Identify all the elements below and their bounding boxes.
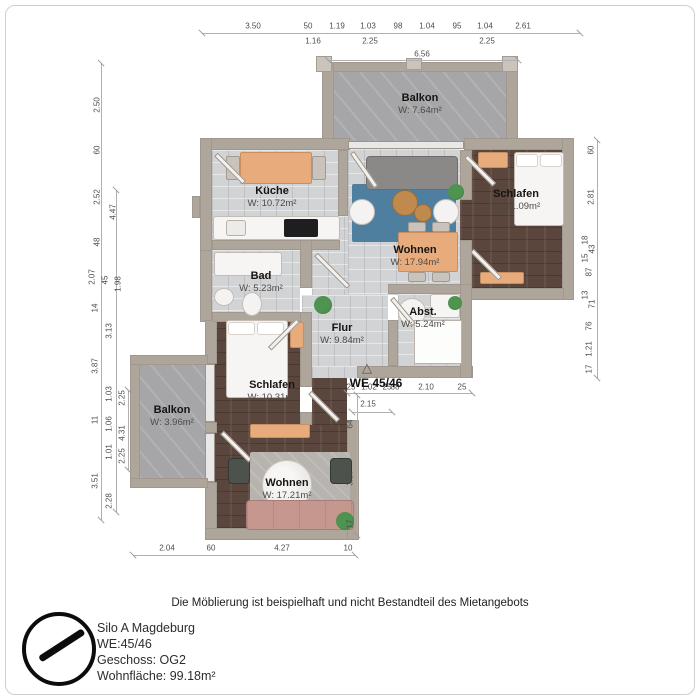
balcony-left-wall	[322, 62, 334, 148]
dim-line-we-2	[352, 412, 392, 413]
dimension-label: 2.61	[515, 22, 531, 31]
balcony-right-wall	[506, 62, 518, 148]
kitchen-table	[240, 152, 312, 184]
dimension-label: 15	[581, 254, 590, 263]
dimension-label: 60	[207, 544, 216, 553]
dim-line-left	[101, 63, 102, 520]
bad-left-wall	[200, 250, 212, 322]
room-name: Küche	[248, 185, 297, 198]
dimension-label: 1.03	[105, 386, 114, 402]
pillow-r1	[516, 154, 538, 167]
dimension-label: 2.81	[587, 189, 596, 205]
toilet	[242, 292, 262, 316]
room-area: W: 7.64m²	[398, 105, 442, 116]
dimension-label: 17	[346, 520, 355, 529]
dimension-label: 18	[581, 236, 590, 245]
dim-line-top	[202, 33, 580, 34]
wohnen-left-wall-upper	[205, 422, 217, 433]
room-label-abst: Abst. W: 5.24m²	[401, 306, 445, 331]
dimension-label: 25	[458, 383, 467, 392]
room-area: W: 10.31m²	[248, 392, 297, 403]
logo-clock-hand	[38, 628, 85, 662]
coffee-table-2	[414, 204, 432, 222]
sideboard	[250, 424, 310, 438]
abst-left-wall	[388, 320, 398, 366]
room-label-schlafen-right: Schlafen W: 11.09m²	[492, 188, 540, 213]
dresser-right-1	[478, 152, 508, 168]
dimension-label: 1.06	[105, 416, 114, 432]
room-label-wohnen-top: Wohnen W: 17.94m²	[391, 244, 440, 269]
kueche-bad-wall	[212, 240, 340, 250]
dimension-label: 87	[585, 268, 594, 277]
dimension-label: 3.37	[346, 470, 355, 486]
dimension-label: 6.56	[414, 50, 430, 59]
washbasin	[214, 288, 234, 306]
dim-line-top-2	[328, 60, 518, 61]
dimension-label: 2.10	[418, 383, 434, 392]
room-label-wohnen-bottom: Wohnen W: 17.21m²	[263, 477, 312, 502]
dimension-label: 98	[394, 22, 403, 31]
kueche-left-wall	[200, 138, 212, 262]
room-area: W: 17.94m²	[391, 257, 440, 268]
room-area: W: 9.84m²	[320, 335, 364, 346]
dim-line-left-3	[128, 390, 129, 470]
balcony-l-left-wall	[130, 355, 140, 488]
dim-line-right	[597, 140, 598, 378]
room-name: Wohnen	[391, 244, 440, 257]
dimension-label: 2.25	[479, 37, 495, 46]
room-name: Abst.	[401, 306, 445, 319]
project-info: Silo A Magdeburg WE:45/46 Geschoss: OG2 …	[97, 620, 216, 684]
room-label-flur: Flur W: 9.84m²	[320, 322, 364, 347]
kueche-left-notch	[192, 196, 200, 218]
dining-chair-4	[432, 272, 450, 282]
entrance-marker-icon	[362, 360, 372, 376]
dimension-label: 3.51	[91, 473, 100, 489]
kueche-wohnen-wall	[338, 150, 348, 216]
dresser-right-2	[480, 272, 524, 284]
project-floor: Geschoss: OG2	[97, 652, 216, 668]
logo-clock-icon	[22, 612, 96, 686]
dimension-label: 1.04	[419, 22, 435, 31]
dimension-label: 3.13	[105, 323, 114, 339]
dimension-label: 17	[585, 365, 594, 374]
dimension-label: 45	[101, 276, 110, 285]
project-living-area: Wohnfläche: 99.18m²	[97, 668, 216, 684]
room-name: Schlafen	[248, 379, 297, 392]
schlafen-bottom-wall	[460, 288, 564, 300]
kueche-top-wall	[200, 138, 350, 150]
pillow-l1	[228, 322, 255, 335]
balcony-post-left	[316, 56, 332, 72]
dimension-label: 2.07	[88, 269, 97, 285]
room-name: Bad	[239, 270, 283, 283]
project-name: Silo A Magdeburg	[97, 620, 216, 636]
dining-chair-2	[432, 222, 450, 232]
room-label-bad: Bad W: 5.23m²	[239, 270, 283, 295]
kitchen-chair-right	[312, 156, 326, 180]
dimension-label: 2.04	[159, 544, 175, 553]
dimension-label: 2.25	[118, 448, 127, 464]
dimension-label: 2.52	[93, 189, 102, 205]
dimension-label: 3.87	[91, 358, 100, 374]
room-label-balkon-left: Balkon W: 3.96m²	[150, 404, 194, 429]
dimension-label: 1.19	[329, 22, 345, 31]
dimension-label: 1.16	[305, 37, 321, 46]
dimension-label: 43	[588, 245, 597, 254]
dimension-label: 48	[93, 238, 102, 247]
dimension-label: 2.28	[105, 493, 114, 509]
bad-right-wall	[300, 240, 312, 288]
abst-top-wall	[388, 284, 464, 294]
pillow-r2	[540, 154, 562, 167]
dimension-label: 76	[585, 322, 594, 331]
dimension-label: 11	[91, 416, 100, 424]
schlafen-right-door-floor	[460, 200, 472, 240]
floor-plan: Balkon W: 7.64m² Küche W: 10.72m² Wohnen…	[0, 0, 700, 700]
dimension-label: 2.25	[362, 37, 378, 46]
room-name: Wohnen	[263, 477, 312, 490]
dimension-label: 13	[581, 291, 590, 300]
dimension-label: 1.21	[585, 341, 594, 357]
room-name: Flur	[320, 322, 364, 335]
dimension-label: 3.50	[245, 22, 261, 31]
dimension-label: 2.15	[360, 400, 376, 409]
plant-2	[448, 296, 462, 310]
dimension-label: 1.01	[105, 444, 114, 460]
dining-chair-1	[408, 222, 426, 232]
dimension-label: 95	[453, 22, 462, 31]
chair-dark-1	[228, 458, 250, 484]
room-name: Balkon	[398, 92, 442, 105]
dimension-label: 10	[344, 544, 353, 553]
dimension-label: 71	[588, 300, 597, 309]
cooktop	[284, 219, 318, 237]
dim-line-inner-v	[357, 395, 358, 535]
dimension-label: 1.04	[477, 22, 493, 31]
room-area: W: 3.96m²	[150, 417, 194, 428]
balcony-l-bottom-wall	[130, 478, 208, 488]
room-label-balkon-top: Balkon W: 7.64m²	[398, 92, 442, 117]
sofa-top	[366, 156, 458, 190]
room-area: W: 17.21m²	[263, 490, 312, 501]
armchair-1	[349, 199, 375, 225]
room-area: W: 5.23m²	[239, 283, 283, 294]
room-label-kueche: Küche W: 10.72m²	[248, 185, 297, 210]
balcony-left-window-1	[205, 364, 215, 422]
dimension-label: 4.31	[118, 425, 127, 441]
dimension-label: 64	[346, 420, 355, 429]
disclaimer-text: Die Möblierung ist beispielhaft und nich…	[0, 597, 700, 609]
room-name: Schlafen	[492, 188, 540, 201]
unit-label: WE 45/46	[350, 376, 403, 390]
project-unit: WE:45/46	[97, 636, 216, 652]
dimension-label: 2.50	[93, 97, 102, 113]
kitchen-sink	[226, 220, 246, 236]
room-area: W: 10.72m²	[248, 198, 297, 209]
schlafen-top-wall	[464, 138, 574, 150]
balcony-left-window-2	[205, 433, 215, 482]
dimension-label: 1.98	[114, 276, 123, 292]
plant-3	[314, 296, 332, 314]
dim-line-we	[347, 393, 472, 394]
room-area: W: 11.09m²	[492, 201, 540, 212]
room-name: Balkon	[150, 404, 194, 417]
dimension-label: 50	[304, 22, 313, 31]
dim-line-bottom	[133, 555, 355, 556]
wohnen-left-wall-lower	[205, 482, 217, 534]
dimension-label: 1.03	[360, 22, 376, 31]
dimension-label: 60	[587, 146, 596, 155]
dimension-label: 14	[91, 304, 100, 313]
room-label-schlafen-left: Schlafen W: 10.31m²	[248, 379, 297, 404]
plant-1	[448, 184, 464, 200]
dimension-label: 4.27	[274, 544, 290, 553]
wohnen-schlafen-wall-lower	[460, 240, 472, 288]
dimension-label: 4.47	[109, 204, 118, 220]
dimension-label: 2.25	[118, 390, 127, 406]
balcony-door-window	[348, 141, 464, 149]
dining-chair-3	[408, 272, 426, 282]
balcony-l-top-wall	[130, 355, 208, 365]
dimension-label: 60	[93, 146, 102, 155]
room-area: W: 5.24m²	[401, 319, 445, 330]
